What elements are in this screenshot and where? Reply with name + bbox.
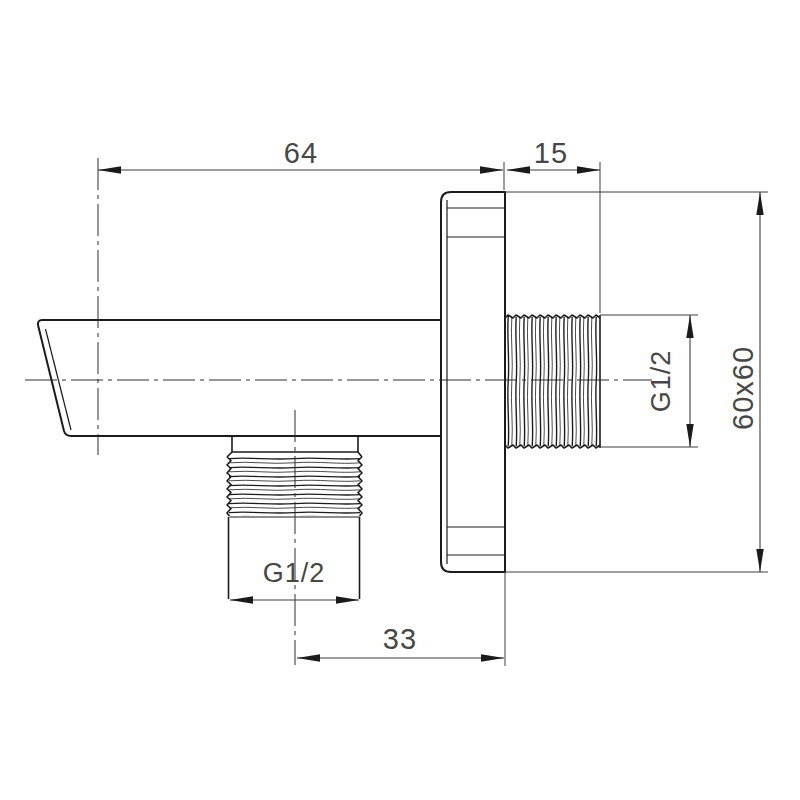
arrow-bottom <box>686 424 693 447</box>
wall-thread-pattern <box>506 317 599 446</box>
dimension-wall-thread-depth: 15 <box>504 137 600 313</box>
dim-label-spout-length: 64 <box>284 137 318 169</box>
wall-thread-bottom-edge <box>505 445 600 448</box>
wall-plate <box>441 192 505 572</box>
wall-thread-top-edge <box>505 315 600 318</box>
arrow-top <box>756 192 763 215</box>
dimension-wall-thread-size: G1/2 <box>600 315 698 447</box>
dim-label-plate-size: 60x60 <box>727 346 759 430</box>
arrow-left <box>507 166 530 173</box>
arrow-bottom <box>756 549 763 572</box>
arrow-left <box>98 166 121 173</box>
wall-thread-pipe <box>505 315 600 448</box>
arrow-left <box>230 596 253 603</box>
plate-face-lines <box>447 208 505 555</box>
arrow-right <box>480 166 503 173</box>
arrow-right <box>336 596 359 603</box>
dim-label-wall-thread-size: G1/2 <box>646 350 676 413</box>
arrow-right <box>481 654 504 661</box>
drawing-canvas: 64 15 60x60 G1/2 G1/2 <box>0 0 800 800</box>
dimension-spout-length: 64 <box>98 137 503 174</box>
dimension-outlet-offset: 33 <box>297 572 505 666</box>
arrow-right <box>577 166 600 173</box>
plate-outline <box>441 192 505 572</box>
arrow-top <box>686 315 693 338</box>
dim-label-wall-thread-depth: 15 <box>534 137 568 169</box>
arrow-left <box>297 654 320 661</box>
dim-label-outlet-thread-size: G1/2 <box>263 558 326 588</box>
dim-label-outlet-offset: 33 <box>383 623 417 655</box>
technical-drawing: 64 15 60x60 G1/2 G1/2 <box>0 0 800 800</box>
